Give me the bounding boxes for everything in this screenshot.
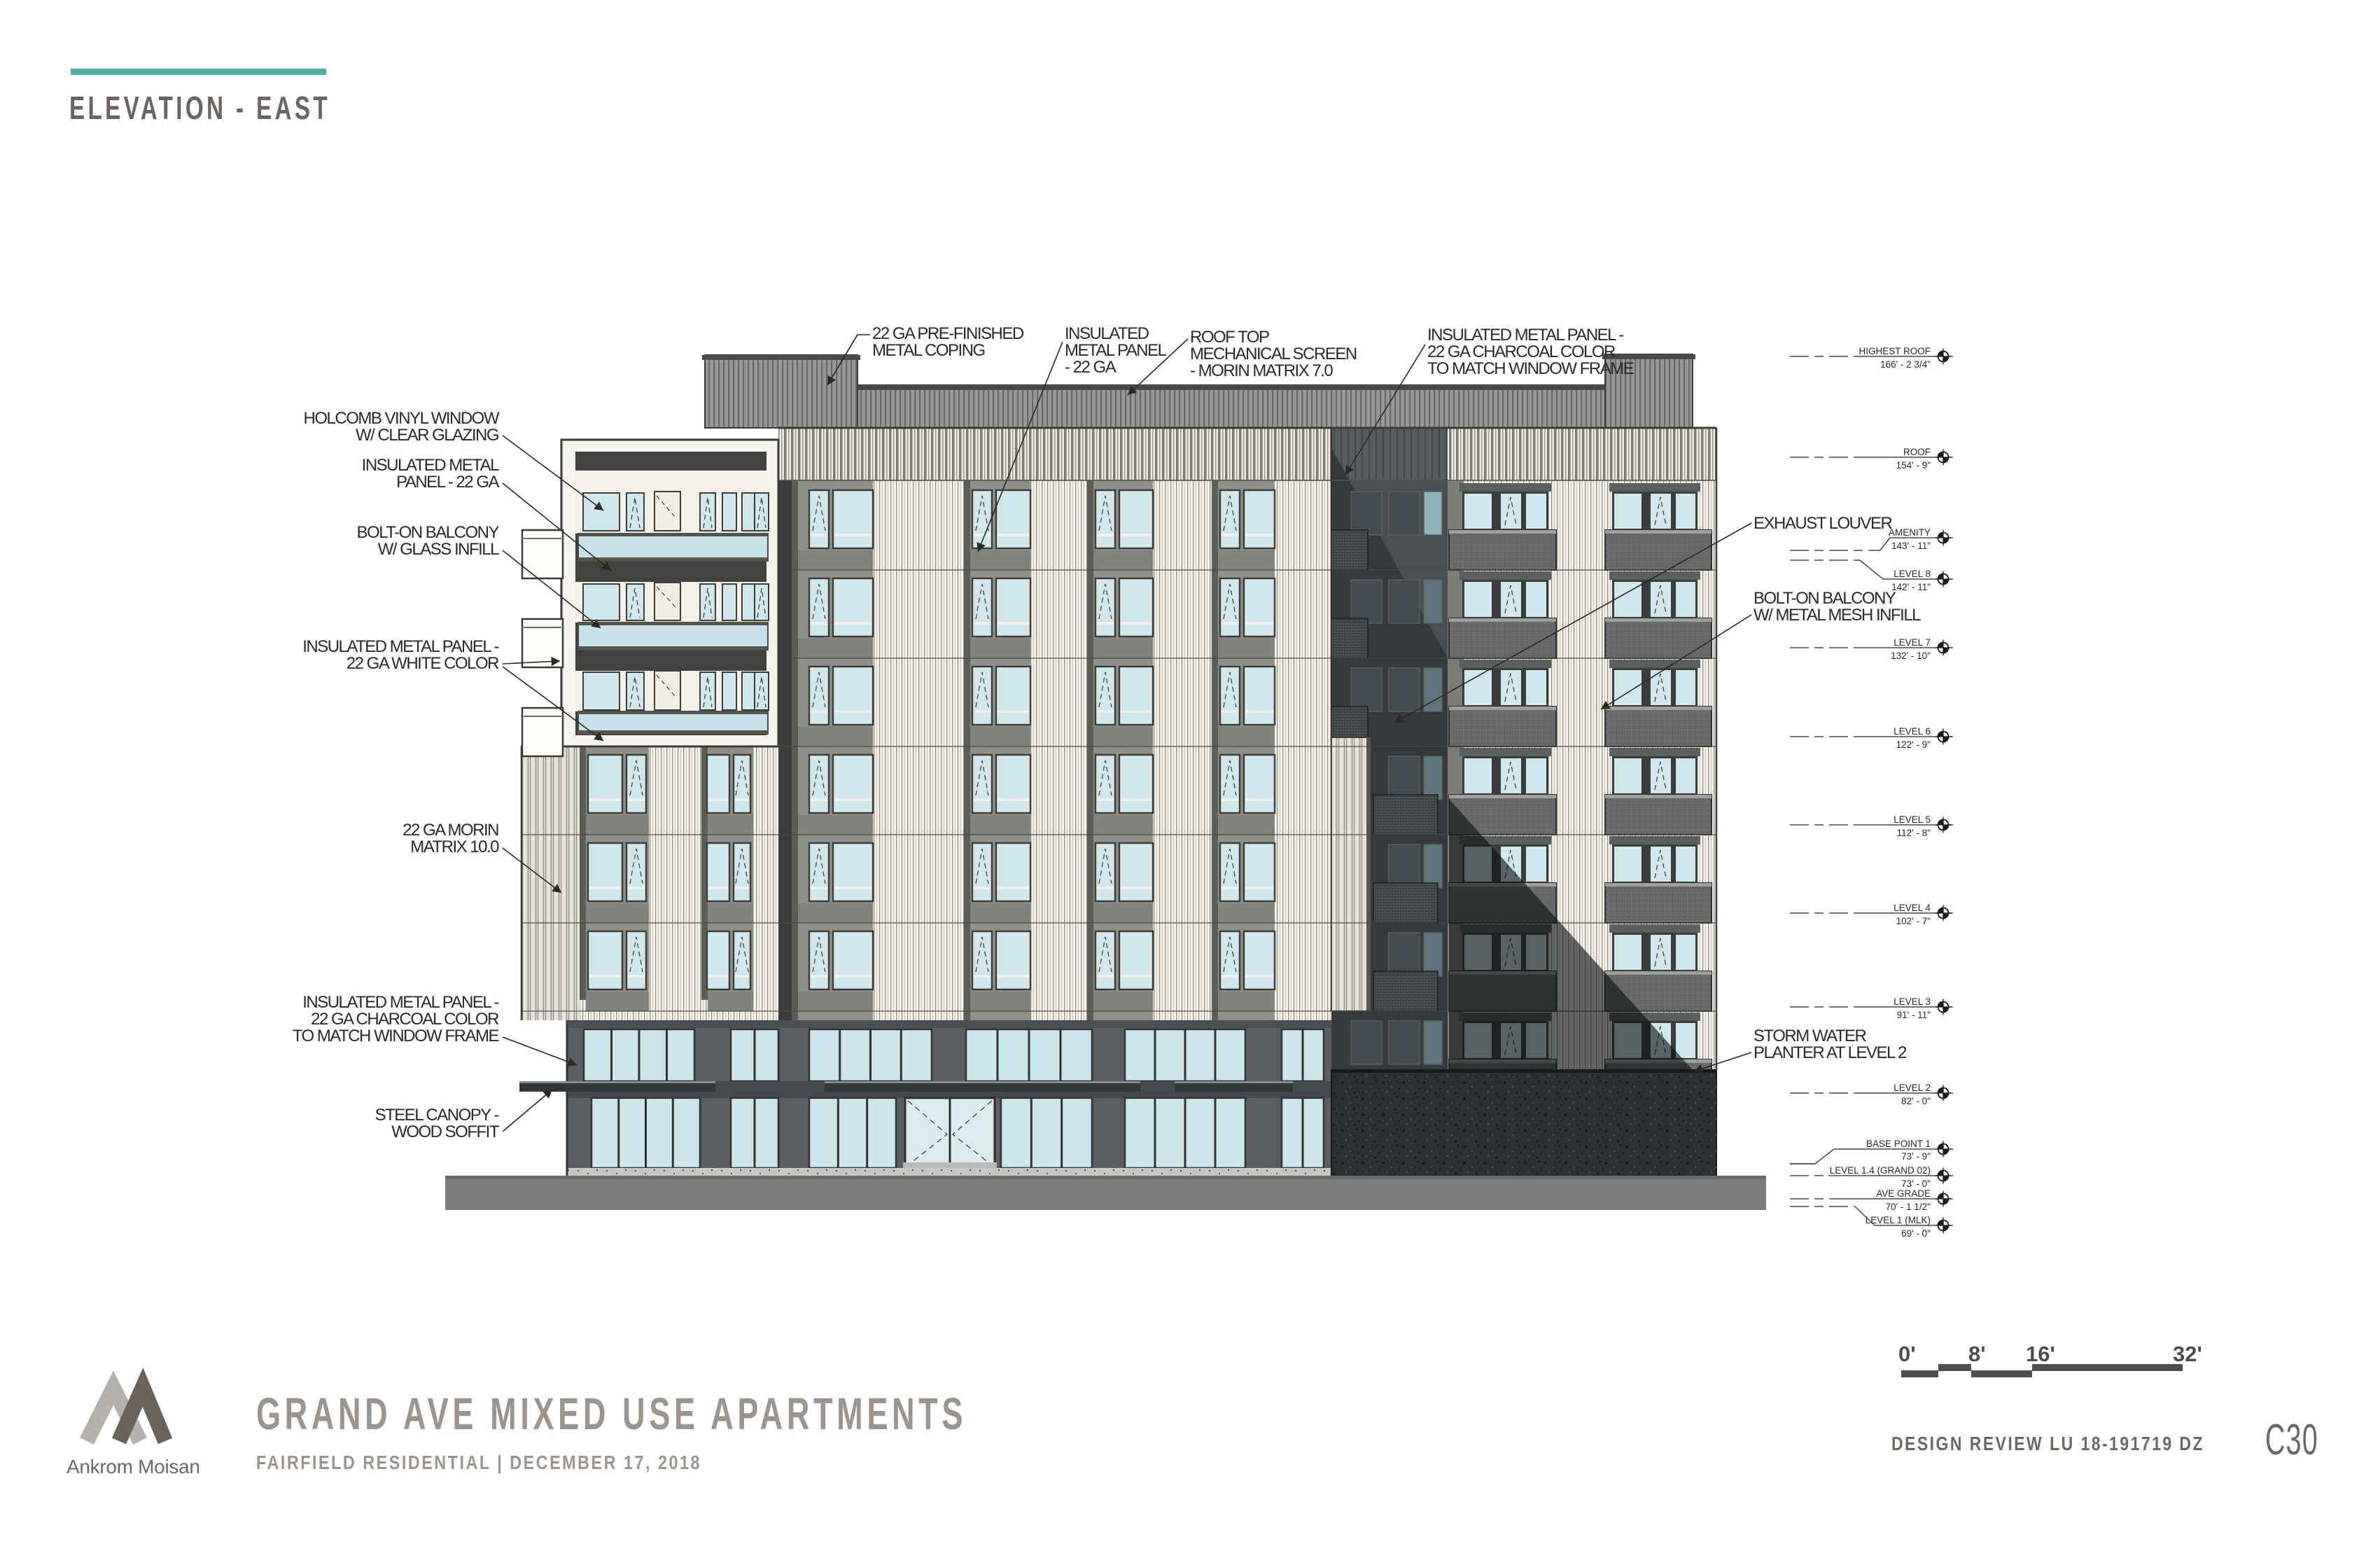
svg-text:73' - 9": 73' - 9": [1901, 1151, 1931, 1162]
svg-text:166' - 2 3/4": 166' - 2 3/4": [1880, 359, 1931, 370]
svg-text:154' - 9": 154' - 9": [1896, 460, 1931, 471]
svg-text:STORM WATER: STORM WATER: [1753, 1027, 1867, 1045]
svg-text:AMENITY: AMENITY: [1889, 527, 1931, 538]
svg-text:LEVEL 4: LEVEL 4: [1893, 903, 1931, 913]
svg-text:82' - 0": 82' - 0": [1901, 1096, 1931, 1106]
svg-text:22 GA CHARCOAL COLOR: 22 GA CHARCOAL COLOR: [311, 1010, 499, 1029]
svg-text:INSULATED METAL: INSULATED METAL: [362, 456, 499, 475]
svg-text:16': 16': [2026, 1342, 2055, 1366]
svg-text:MECHANICAL SCREEN: MECHANICAL SCREEN: [1190, 345, 1357, 363]
svg-text:INSULATED METAL PANEL -: INSULATED METAL PANEL -: [1427, 326, 1623, 345]
svg-text:132' - 10": 132' - 10": [1891, 651, 1931, 661]
svg-text:C30: C30: [2265, 1416, 2318, 1464]
svg-text:INSULATED METAL PANEL -: INSULATED METAL PANEL -: [302, 993, 498, 1012]
svg-text:142' - 11": 142' - 11": [1891, 582, 1931, 592]
svg-text:EXHAUST LOUVER: EXHAUST LOUVER: [1753, 514, 1892, 533]
svg-text:122' - 9": 122' - 9": [1896, 739, 1931, 750]
svg-text:70' - 1 1/2": 70' - 1 1/2": [1886, 1202, 1931, 1212]
svg-text:INSULATED METAL PANEL -: INSULATED METAL PANEL -: [302, 637, 498, 656]
svg-text:91' - 11": 91' - 11": [1897, 1010, 1931, 1020]
svg-text:BOLT-ON BALCONY: BOLT-ON BALCONY: [357, 523, 500, 542]
svg-text:HOLCOMB VINYL WINDOW: HOLCOMB VINYL WINDOW: [304, 409, 500, 428]
svg-text:73' - 0": 73' - 0": [1901, 1178, 1931, 1189]
svg-text:22 GA PRE-FINISHED: 22 GA PRE-FINISHED: [872, 324, 1024, 343]
svg-text:W/ METAL MESH INFILL: W/ METAL MESH INFILL: [1753, 606, 1921, 625]
svg-text:- 22 GA: - 22 GA: [1065, 358, 1116, 377]
svg-text:22 GA WHITE COLOR: 22 GA WHITE COLOR: [346, 654, 499, 673]
svg-text:BASE POINT 1: BASE POINT 1: [1866, 1139, 1931, 1149]
svg-text:METAL PANEL: METAL PANEL: [1065, 341, 1167, 360]
svg-text:LEVEL 7: LEVEL 7: [1893, 637, 1931, 648]
svg-text:W/ CLEAR GLAZING: W/ CLEAR GLAZING: [356, 426, 498, 445]
svg-text:INSULATED: INSULATED: [1065, 324, 1149, 343]
svg-text:LEVEL 6: LEVEL 6: [1893, 726, 1931, 737]
svg-text:ELEVATION - EAST: ELEVATION - EAST: [69, 90, 330, 126]
svg-text:HIGHEST ROOF: HIGHEST ROOF: [1858, 346, 1931, 356]
svg-text:LEVEL 1 (MLK): LEVEL 1 (MLK): [1865, 1215, 1931, 1225]
svg-text:GRAND AVE MIXED USE APARTMENTS: GRAND AVE MIXED USE APARTMENTS: [256, 1389, 967, 1439]
svg-text:LEVEL 3: LEVEL 3: [1893, 996, 1931, 1007]
svg-text:- MORIN MATRIX 7.0: - MORIN MATRIX 7.0: [1190, 361, 1333, 380]
svg-text:FAIRFIELD RESIDENTIAL | DECEM: FAIRFIELD RESIDENTIAL | DECEMBER 17, 201…: [256, 1452, 701, 1473]
svg-text:WOOD SOFFIT: WOOD SOFFIT: [391, 1122, 500, 1141]
svg-text:22 GA MORIN: 22 GA MORIN: [402, 821, 498, 840]
svg-text:BOLT-ON BALCONY: BOLT-ON BALCONY: [1753, 589, 1896, 608]
svg-text:AVE GRADE: AVE GRADE: [1876, 1188, 1931, 1199]
svg-text:ROOF TOP: ROOF TOP: [1190, 328, 1269, 347]
svg-text:LEVEL 1.4 (GRAND 02): LEVEL 1.4 (GRAND 02): [1830, 1165, 1931, 1176]
svg-text:32': 32': [2173, 1342, 2202, 1366]
svg-text:DESIGN REVIEW LU 18-191719 DZ: DESIGN REVIEW LU 18-191719 DZ: [1891, 1433, 2204, 1454]
svg-text:102' - 7": 102' - 7": [1896, 916, 1931, 926]
svg-text:TO MATCH WINDOW FRAME: TO MATCH WINDOW FRAME: [293, 1027, 499, 1045]
svg-text:W/ GLASS INFILL: W/ GLASS INFILL: [378, 540, 499, 559]
svg-text:22 GA CHARCOAL COLOR: 22 GA CHARCOAL COLOR: [1427, 342, 1616, 361]
svg-text:143' - 11": 143' - 11": [1891, 541, 1931, 551]
svg-text:Ankrom Moisan: Ankrom Moisan: [66, 1456, 200, 1477]
svg-text:TO MATCH WINDOW FRAME: TO MATCH WINDOW FRAME: [1427, 359, 1634, 378]
svg-text:STEEL CANOPY -: STEEL CANOPY -: [375, 1106, 499, 1125]
svg-text:PLANTER AT LEVEL 2: PLANTER AT LEVEL 2: [1753, 1043, 1907, 1062]
svg-text:LEVEL 5: LEVEL 5: [1893, 814, 1931, 825]
svg-text:0': 0': [1898, 1342, 1916, 1366]
svg-text:MATRIX 10.0: MATRIX 10.0: [410, 837, 499, 856]
svg-text:LEVEL 2: LEVEL 2: [1893, 1083, 1931, 1093]
svg-text:METAL COPING: METAL COPING: [872, 341, 985, 360]
svg-text:PANEL - 22 GA: PANEL - 22 GA: [396, 473, 499, 492]
svg-text:ROOF: ROOF: [1903, 447, 1931, 457]
svg-text:LEVEL 8: LEVEL 8: [1893, 569, 1931, 579]
svg-text:69' - 0": 69' - 0": [1901, 1228, 1931, 1239]
svg-text:8': 8': [1968, 1342, 1986, 1366]
svg-text:112' - 8": 112' - 8": [1897, 828, 1931, 838]
